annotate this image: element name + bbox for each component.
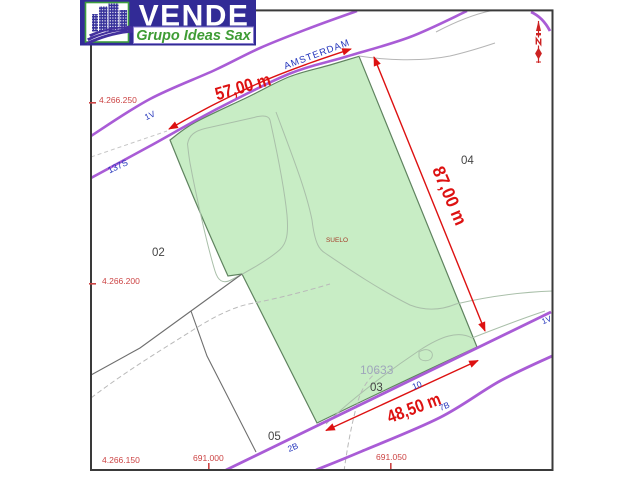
svg-text:691.000: 691.000 — [193, 453, 224, 463]
svg-text:03: 03 — [370, 382, 383, 394]
svg-text:10633: 10633 — [360, 363, 394, 377]
svg-text:SUELO: SUELO — [326, 237, 348, 244]
svg-text:4.266.150: 4.266.150 — [102, 455, 140, 465]
svg-text:4.266.250: 4.266.250 — [99, 95, 137, 105]
svg-text:05: 05 — [268, 431, 281, 443]
svg-text:691.050: 691.050 — [376, 452, 407, 462]
svg-text:02: 02 — [152, 247, 165, 259]
svg-text:4.266.200: 4.266.200 — [102, 276, 140, 286]
svg-text:04: 04 — [461, 155, 474, 167]
svg-text:Grupo Ideas Sax: Grupo Ideas Sax — [136, 28, 251, 44]
